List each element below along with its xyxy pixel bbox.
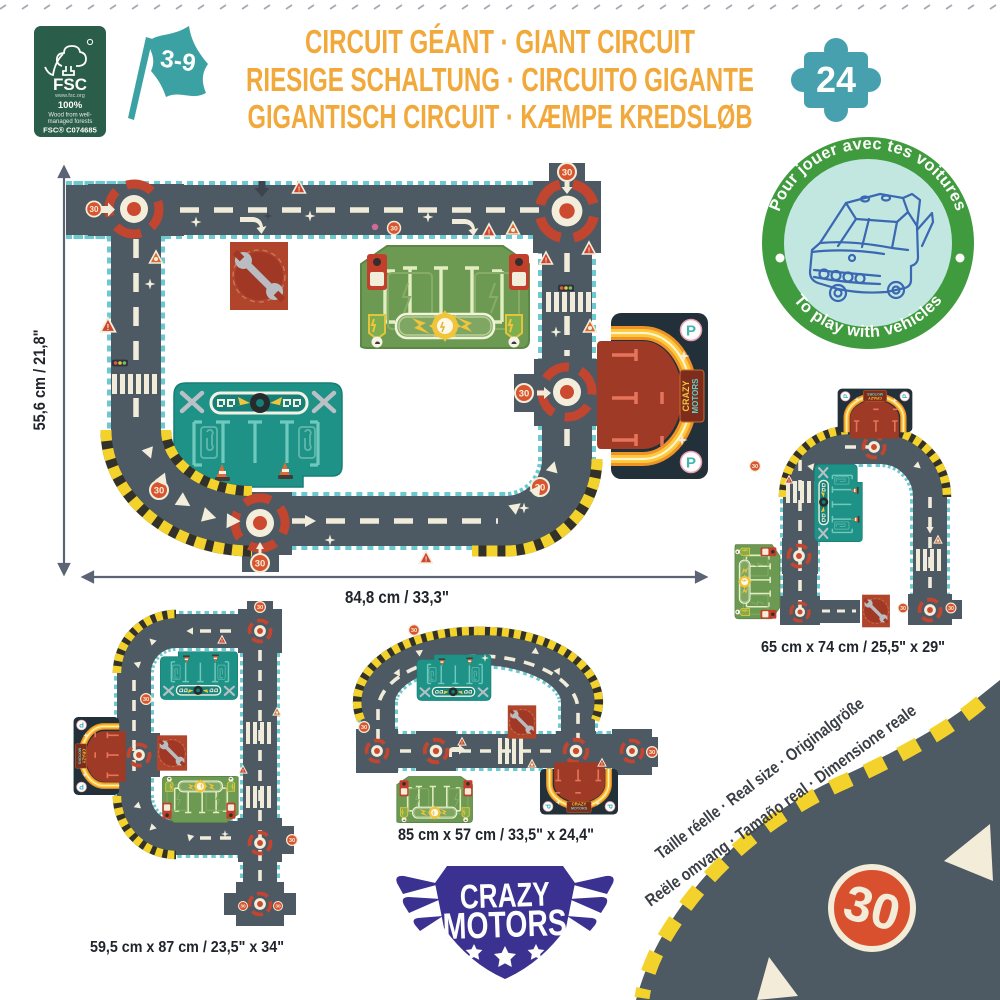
svg-text:3-9: 3-9 bbox=[158, 45, 197, 77]
svg-text:85 cm x 57 cm / 33,5" x 24,4": 85 cm x 57 cm / 33,5" x 24,4" bbox=[398, 826, 594, 844]
svg-text:www.fsc.org: www.fsc.org bbox=[54, 93, 85, 99]
svg-text:65 cm x 74 cm / 25,5" x 29": 65 cm x 74 cm / 25,5" x 29" bbox=[761, 639, 945, 656]
svg-text:managed forests: managed forests bbox=[48, 119, 93, 125]
svg-text:GIGANTISCH CIRCUIT · KÆMPE KRE: GIGANTISCH CIRCUIT · KÆMPE KREDSLØB bbox=[248, 98, 753, 135]
svg-text:84,8 cm / 33,3": 84,8 cm / 33,3" bbox=[345, 587, 449, 607]
svg-text:FSC: FSC bbox=[53, 75, 87, 94]
svg-text:Wood from well-: Wood from well- bbox=[48, 113, 91, 119]
svg-text:100%: 100% bbox=[58, 100, 83, 111]
svg-text:59,5 cm x 87 cm / 23,5" x 34": 59,5 cm x 87 cm / 23,5" x 34" bbox=[90, 939, 284, 956]
svg-text:24: 24 bbox=[816, 59, 856, 100]
svg-text:MOTORS: MOTORS bbox=[442, 902, 567, 947]
svg-text:CIRCUIT GÉANT · GIANT CIRCUIT: CIRCUIT GÉANT · GIANT CIRCUIT bbox=[305, 23, 695, 60]
svg-text:RIESIGE SCHALTUNG · CIRCUITO G: RIESIGE SCHALTUNG · CIRCUITO GIGANTE bbox=[246, 61, 754, 98]
svg-text:55,6 cm / 21,8": 55,6 cm / 21,8" bbox=[31, 330, 49, 431]
svg-text:FSC® C074685: FSC® C074685 bbox=[43, 126, 97, 135]
